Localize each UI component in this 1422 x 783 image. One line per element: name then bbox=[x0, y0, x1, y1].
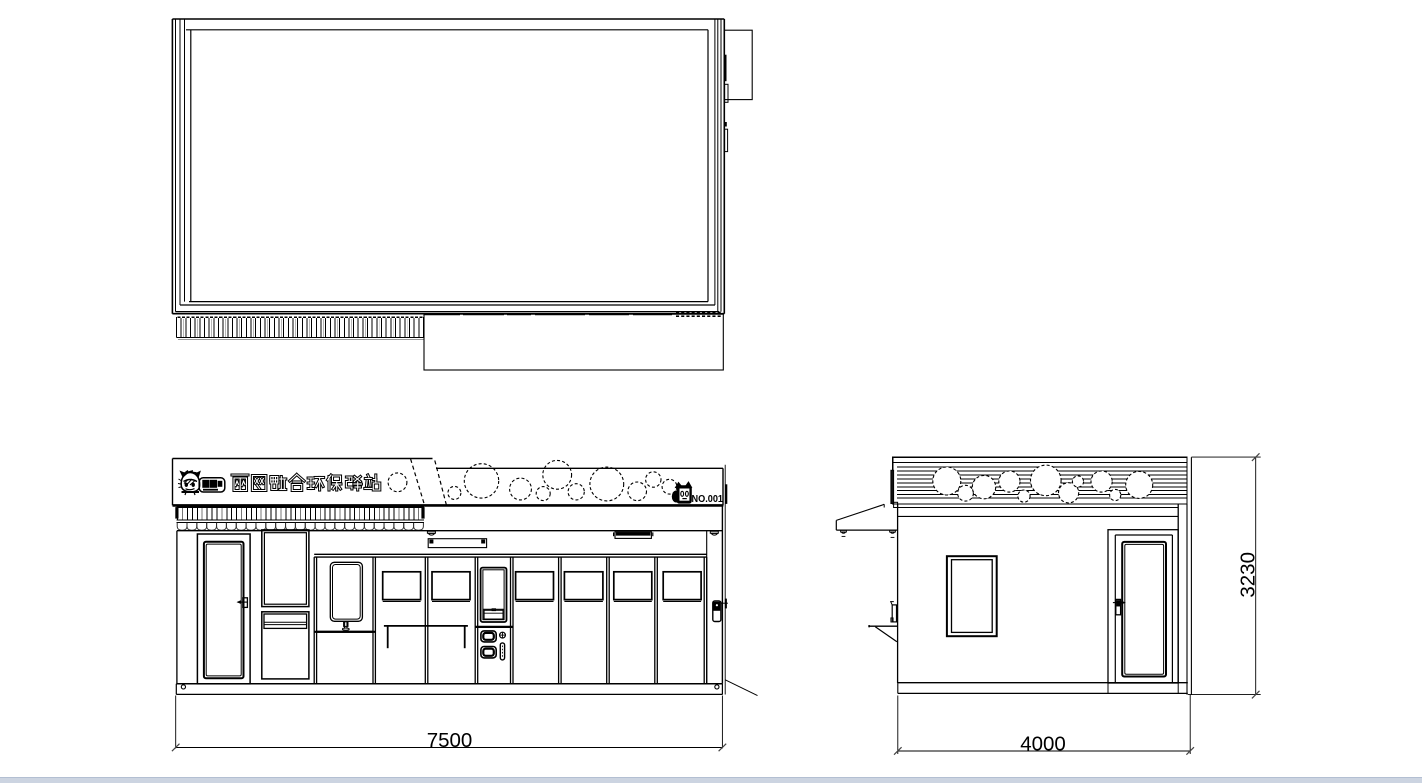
svg-text:4000: 4000 bbox=[1020, 732, 1066, 755]
svg-text:NO.001: NO.001 bbox=[692, 493, 724, 505]
svg-text:3230: 3230 bbox=[1237, 552, 1260, 598]
svg-text:7500: 7500 bbox=[427, 729, 473, 752]
